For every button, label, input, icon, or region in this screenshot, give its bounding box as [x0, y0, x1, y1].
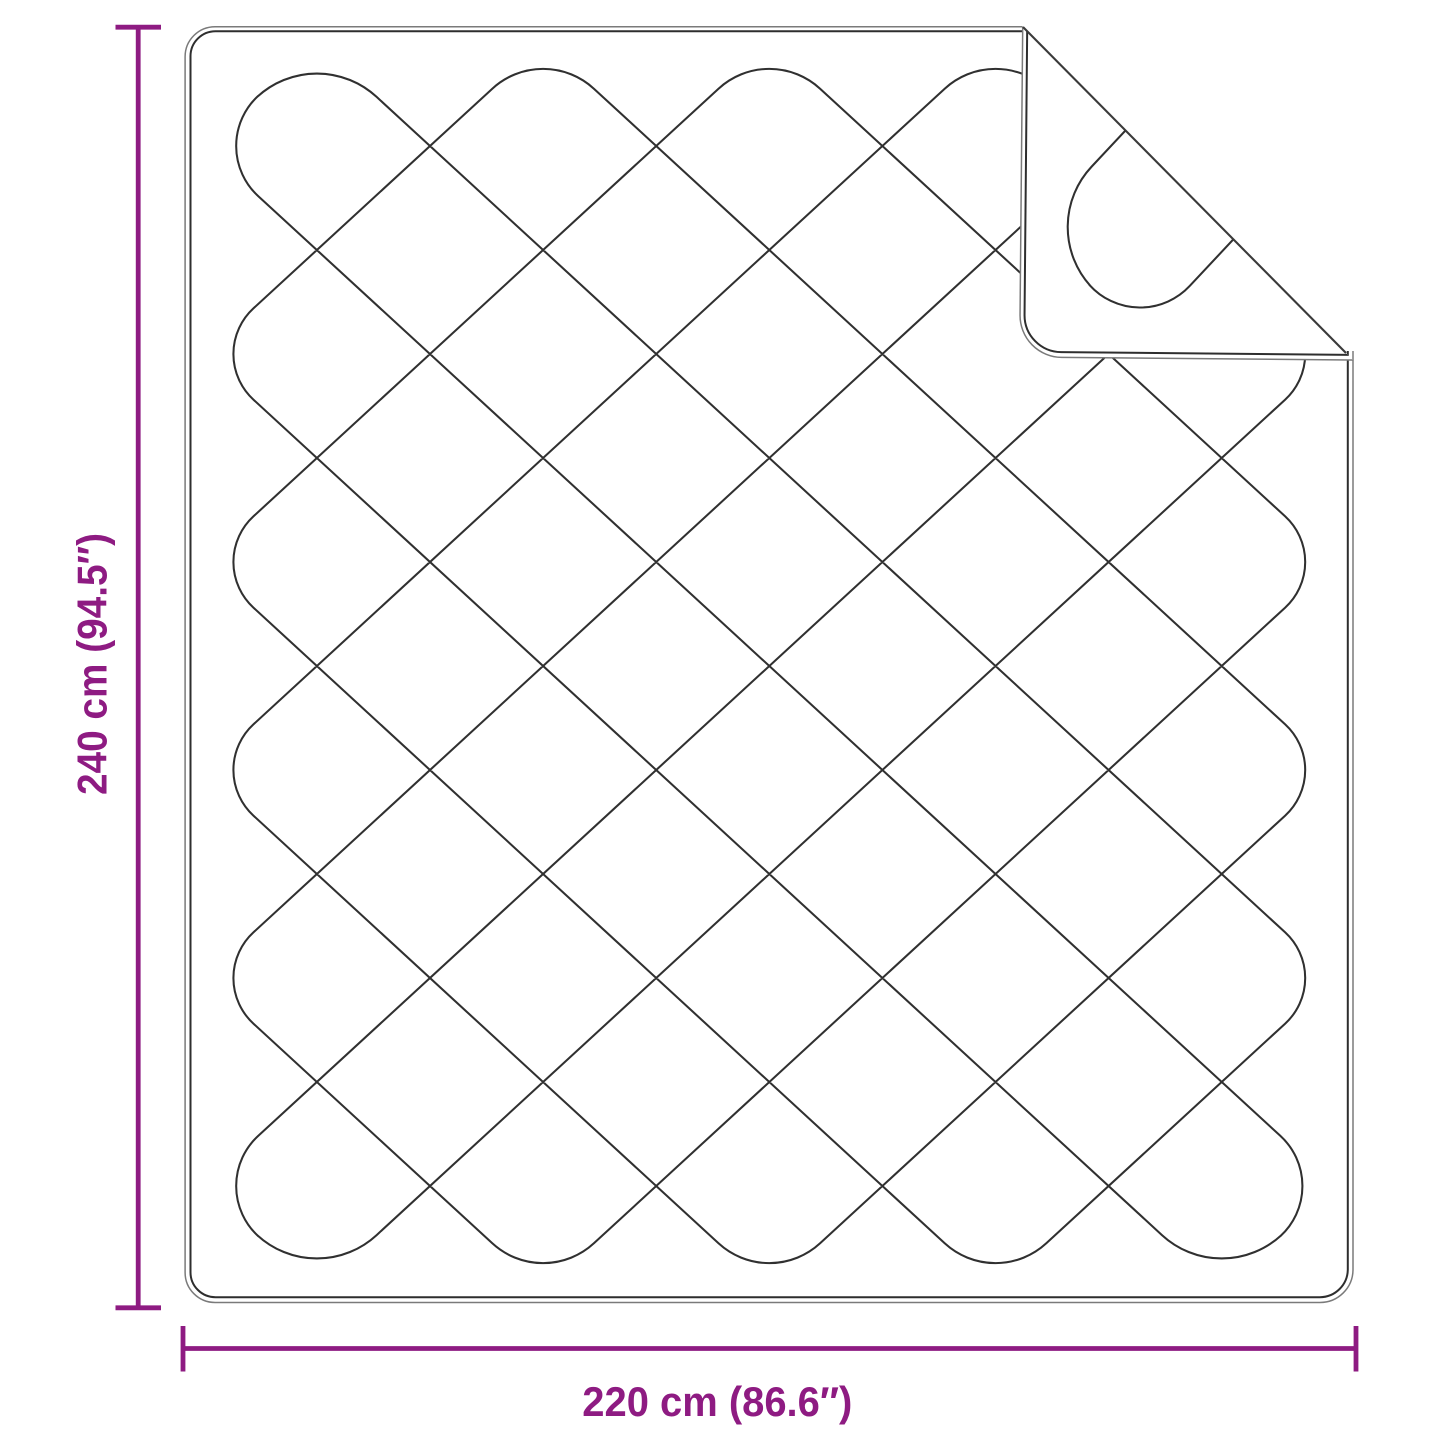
svg-text:220 cm (86.6″): 220 cm (86.6″) [582, 1378, 852, 1425]
svg-text:240 cm (94.5″): 240 cm (94.5″) [69, 533, 116, 795]
